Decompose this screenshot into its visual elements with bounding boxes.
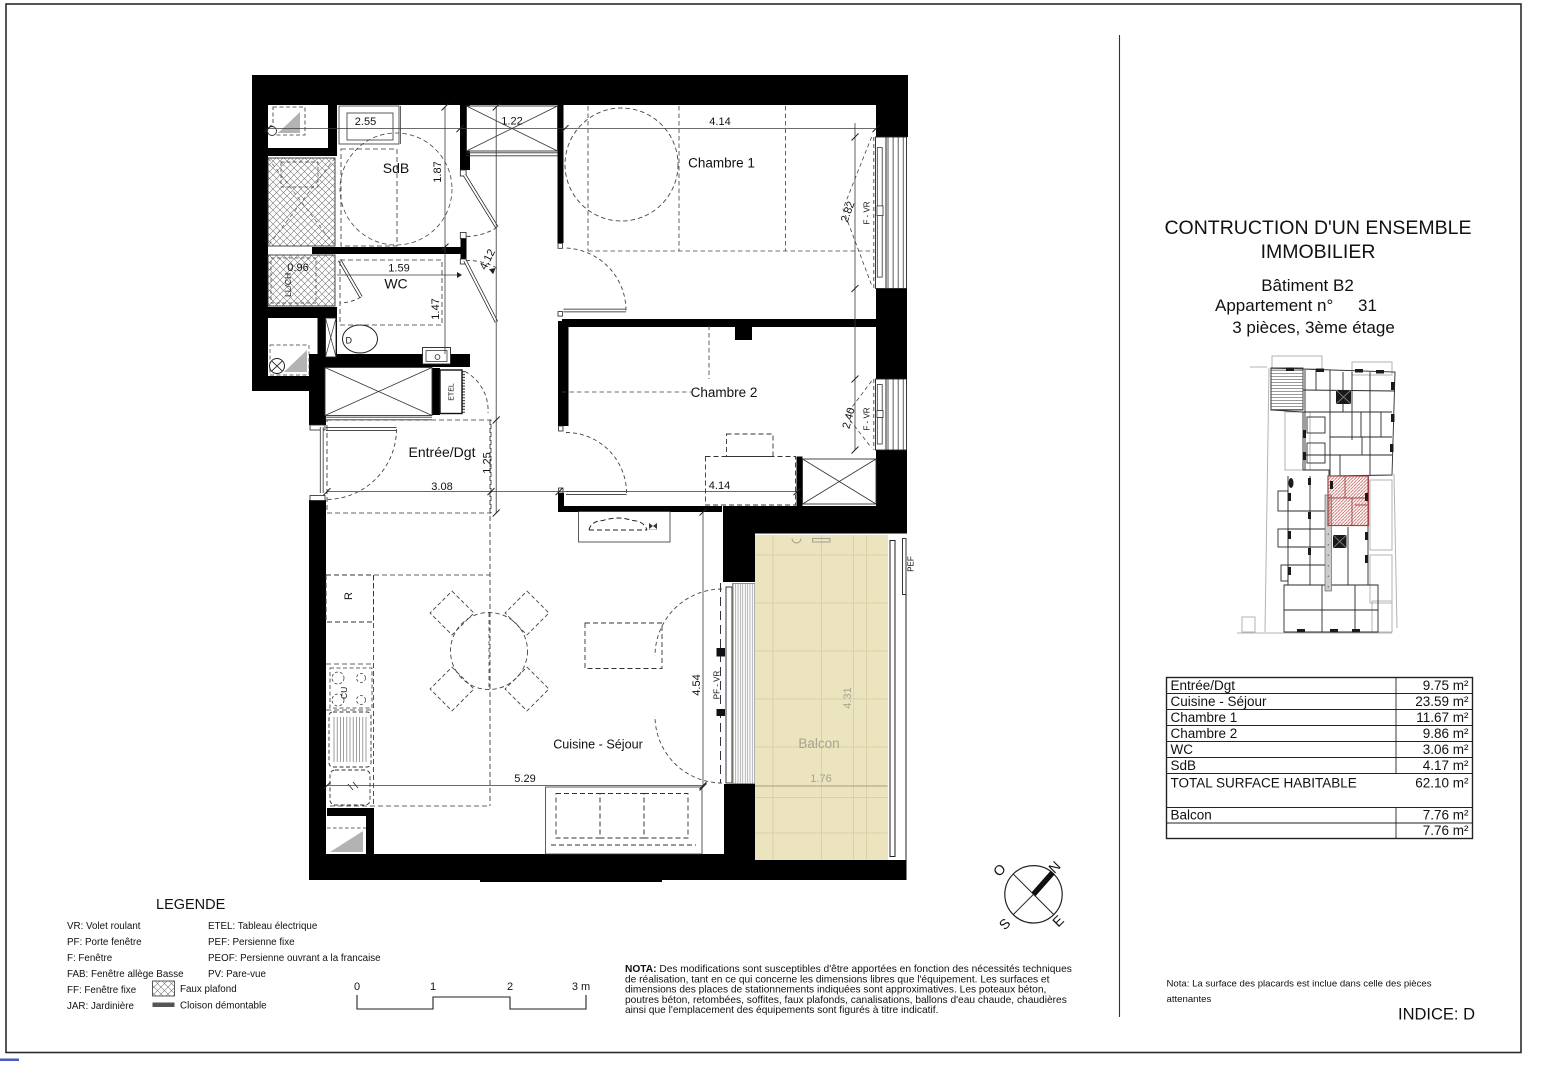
svg-text:CONTRUCTION D'UN ENSEMBLE: CONTRUCTION D'UN ENSEMBLE <box>1164 217 1471 239</box>
svg-text:attenantes: attenantes <box>1167 994 1212 1005</box>
svg-text:4.14: 4.14 <box>709 480 730 492</box>
svg-text:3 pièces, 3ème étage: 3 pièces, 3ème étage <box>1232 318 1395 337</box>
svg-text:31: 31 <box>1358 296 1377 315</box>
svg-text:4.14: 4.14 <box>709 116 730 128</box>
svg-text:3.06 m²: 3.06 m² <box>1423 742 1469 757</box>
svg-text:Entrée/Dgt: Entrée/Dgt <box>409 444 476 460</box>
svg-text:ainsi que l'emplacement des éq: ainsi que l'emplacement des équipements … <box>625 1005 938 1016</box>
svg-text:3 m: 3 m <box>572 981 590 993</box>
svg-text:1: 1 <box>430 981 436 993</box>
svg-text:23.59 m²: 23.59 m² <box>1415 694 1469 709</box>
svg-text:PEF: Persienne fixe: PEF: Persienne fixe <box>208 937 295 948</box>
svg-text:Appartement n°: Appartement n° <box>1215 296 1333 315</box>
svg-text:1.25: 1.25 <box>482 452 494 473</box>
svg-text:R: R <box>343 592 355 600</box>
svg-text:Chambre 1: Chambre 1 <box>688 156 755 171</box>
svg-text:PEF: PEF <box>907 556 916 572</box>
svg-text:1.47: 1.47 <box>430 298 442 319</box>
svg-text:4.17 m²: 4.17 m² <box>1423 758 1469 773</box>
svg-text:9.86 m²: 9.86 m² <box>1423 726 1469 741</box>
svg-text:1.59: 1.59 <box>388 263 409 275</box>
svg-text:Cuisine - Séjour: Cuisine - Séjour <box>553 738 643 752</box>
svg-text:3.08: 3.08 <box>431 481 452 493</box>
svg-text:D: D <box>346 336 353 346</box>
svg-text:SdB: SdB <box>1171 758 1197 773</box>
svg-text:F - VR: F - VR <box>863 407 872 430</box>
svg-text:0: 0 <box>354 981 360 993</box>
svg-text:2: 2 <box>507 981 513 993</box>
svg-text:Entrée/Dgt: Entrée/Dgt <box>1171 678 1236 693</box>
svg-text:7.76 m²: 7.76 m² <box>1423 807 1469 822</box>
svg-text:WC: WC <box>1171 742 1194 757</box>
svg-text:INDICE: D: INDICE: D <box>1398 1006 1475 1024</box>
svg-text:4.31: 4.31 <box>842 687 854 708</box>
svg-text:1.87: 1.87 <box>432 161 444 182</box>
svg-text:PV: Pare-vue: PV: Pare-vue <box>208 969 266 980</box>
svg-text:TOTAL SURFACE HABITABLE: TOTAL SURFACE HABITABLE <box>1171 776 1357 791</box>
svg-text:Balcon: Balcon <box>798 736 839 751</box>
svg-text:PF: Porte fenêtre: PF: Porte fenêtre <box>67 937 142 948</box>
svg-text:1.76: 1.76 <box>810 773 831 785</box>
svg-text:4.54: 4.54 <box>691 674 703 695</box>
svg-text:CU: CU <box>339 687 349 699</box>
svg-text:62.10 m²: 62.10 m² <box>1415 776 1469 791</box>
svg-text:VR: Volet roulant: VR: Volet roulant <box>67 921 141 932</box>
svg-text:Bâtiment B2: Bâtiment B2 <box>1261 276 1354 295</box>
svg-text:0.96: 0.96 <box>287 262 308 274</box>
svg-text:FAB: Fenêtre allège Basse: FAB: Fenêtre allège Basse <box>67 969 184 980</box>
svg-text:2.55: 2.55 <box>355 116 376 128</box>
svg-text:Cuisine - Séjour: Cuisine - Séjour <box>1171 694 1268 709</box>
svg-text:Faux plafond: Faux plafond <box>180 984 237 995</box>
svg-text:ETEL: ETEL <box>449 383 456 401</box>
svg-text:5.29: 5.29 <box>514 773 535 785</box>
svg-text:PF - VR: PF - VR <box>713 671 722 700</box>
svg-text:ETEL: Tableau électrique: ETEL: Tableau électrique <box>208 921 318 932</box>
svg-text:Chambre 2: Chambre 2 <box>1171 726 1238 741</box>
svg-text:Chambre 2: Chambre 2 <box>691 385 758 400</box>
svg-text:Cloison démontable: Cloison démontable <box>180 1001 267 1012</box>
svg-text:F: Fenêtre: F: Fenêtre <box>67 953 113 964</box>
svg-text:11.67 m²: 11.67 m² <box>1416 710 1469 725</box>
svg-text:LEGENDE: LEGENDE <box>156 897 226 913</box>
svg-text:LL/CH: LL/CH <box>283 273 293 297</box>
svg-text:JAR: Jardinière: JAR: Jardinière <box>67 1001 135 1012</box>
svg-text:9.75 m²: 9.75 m² <box>1423 678 1469 693</box>
svg-text:WC: WC <box>384 276 407 292</box>
svg-text:SdB: SdB <box>383 160 409 176</box>
svg-text:PEOF: Persienne ouvrant a la f: PEOF: Persienne ouvrant a la francaise <box>208 953 381 964</box>
svg-text:FF: Fenêtre fixe: FF: Fenêtre fixe <box>67 985 137 996</box>
svg-text:F - VR: F - VR <box>863 201 872 224</box>
svg-text:Nota: La surface des placards: Nota: La surface des placards est inclue… <box>1167 979 1432 990</box>
svg-text:Balcon: Balcon <box>1171 807 1212 822</box>
svg-text:IMMOBILIER: IMMOBILIER <box>1261 241 1376 263</box>
svg-text:1.22: 1.22 <box>501 116 522 128</box>
svg-text:7.76 m²: 7.76 m² <box>1423 823 1469 838</box>
svg-text:Chambre 1: Chambre 1 <box>1171 710 1238 725</box>
